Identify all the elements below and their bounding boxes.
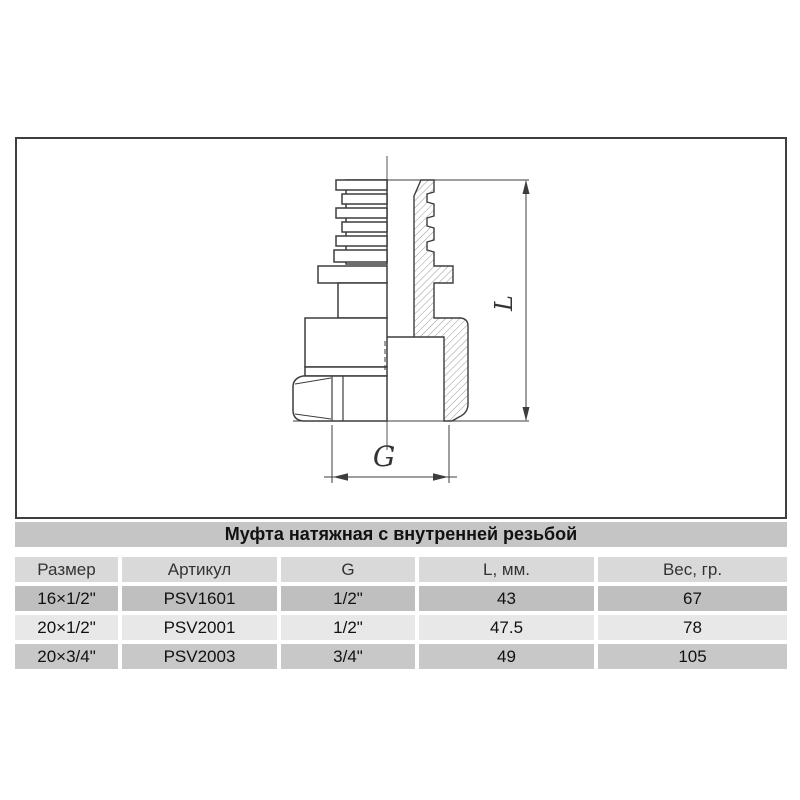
table-row: 20×1/2"PSV20011/2"47.578 — [15, 615, 787, 640]
dimension-label-l: L — [490, 295, 518, 312]
table-cell: 1/2" — [281, 586, 415, 611]
table-cell: 49 — [419, 644, 594, 669]
table-header-row: РазмерАртикулGL, мм.Вес, гр. — [15, 557, 787, 582]
spec-table: Муфта натяжная с внутренней резьбой Разм… — [15, 522, 787, 669]
table-cell: 105 — [598, 644, 787, 669]
table-cell: 1/2" — [281, 615, 415, 640]
table-title: Муфта натяжная с внутренней резьбой — [15, 522, 787, 547]
table-cell: PSV2003 — [122, 644, 277, 669]
table-cell: PSV2001 — [122, 615, 277, 640]
header-cell-0: Размер — [15, 557, 118, 582]
table-cell: 78 — [598, 615, 787, 640]
table-cell: 20×3/4" — [15, 644, 118, 669]
technical-drawing: L G — [0, 0, 800, 520]
table-cell: 67 — [598, 586, 787, 611]
drawing-frame — [16, 138, 786, 518]
table-row: 20×3/4"PSV20033/4"49105 — [15, 644, 787, 669]
table-cell: 3/4" — [281, 644, 415, 669]
table-cell: 43 — [419, 586, 594, 611]
table-row: 16×1/2"PSV16011/2"4367 — [15, 586, 787, 611]
header-cell-1: Артикул — [122, 557, 277, 582]
table-body: 16×1/2"PSV16011/2"436720×1/2"PSV20011/2"… — [15, 586, 787, 669]
table-cell: 16×1/2" — [15, 586, 118, 611]
header-cell-3: L, мм. — [419, 557, 594, 582]
header-cell-4: Вес, гр. — [598, 557, 787, 582]
header-cell-2: G — [281, 557, 415, 582]
datasheet: L G Муфта натяжная с внутренней резьбой … — [0, 0, 800, 800]
table-cell: PSV1601 — [122, 586, 277, 611]
hex-nut — [293, 376, 387, 421]
table-cell: 20×1/2" — [15, 615, 118, 640]
dimension-label-g: G — [373, 440, 395, 473]
table-cell: 47.5 — [419, 615, 594, 640]
